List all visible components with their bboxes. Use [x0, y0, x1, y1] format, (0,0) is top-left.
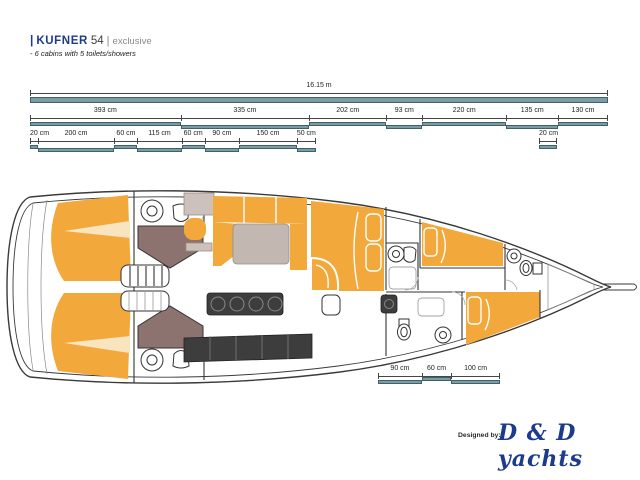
designed-by-label: Designed by:: [458, 432, 501, 439]
fore-cabin-port: [420, 219, 505, 268]
aft-berth-port: [51, 195, 131, 281]
page: |KUFNER54|exclusive - 6 cabins with 5 to…: [0, 0, 640, 480]
deck-plan: [0, 0, 640, 480]
burner-icon: [211, 297, 225, 311]
salon-table: [233, 224, 289, 264]
toilet-icon: [404, 247, 416, 262]
nav-seat: [322, 295, 340, 315]
aft-berth-starboard: [51, 293, 131, 379]
fore-berth-starboard: [466, 292, 540, 345]
burner-icon: [249, 297, 263, 311]
burner-icon: [268, 297, 282, 311]
salon-sofa-end: [290, 224, 307, 270]
aft-cabin-port: [51, 195, 131, 281]
salon-cabinet: [184, 193, 214, 215]
salon-pouf: [184, 218, 206, 240]
galley-counter: [184, 334, 312, 362]
studio-logo: D & D yachts: [498, 420, 640, 472]
aft-cabin-starboard: [51, 293, 131, 379]
fore-cabin-starboard: [466, 290, 540, 345]
toilet-icon: [533, 263, 542, 274]
salon-sofa-back: [213, 196, 307, 224]
burner-icon: [230, 297, 244, 311]
